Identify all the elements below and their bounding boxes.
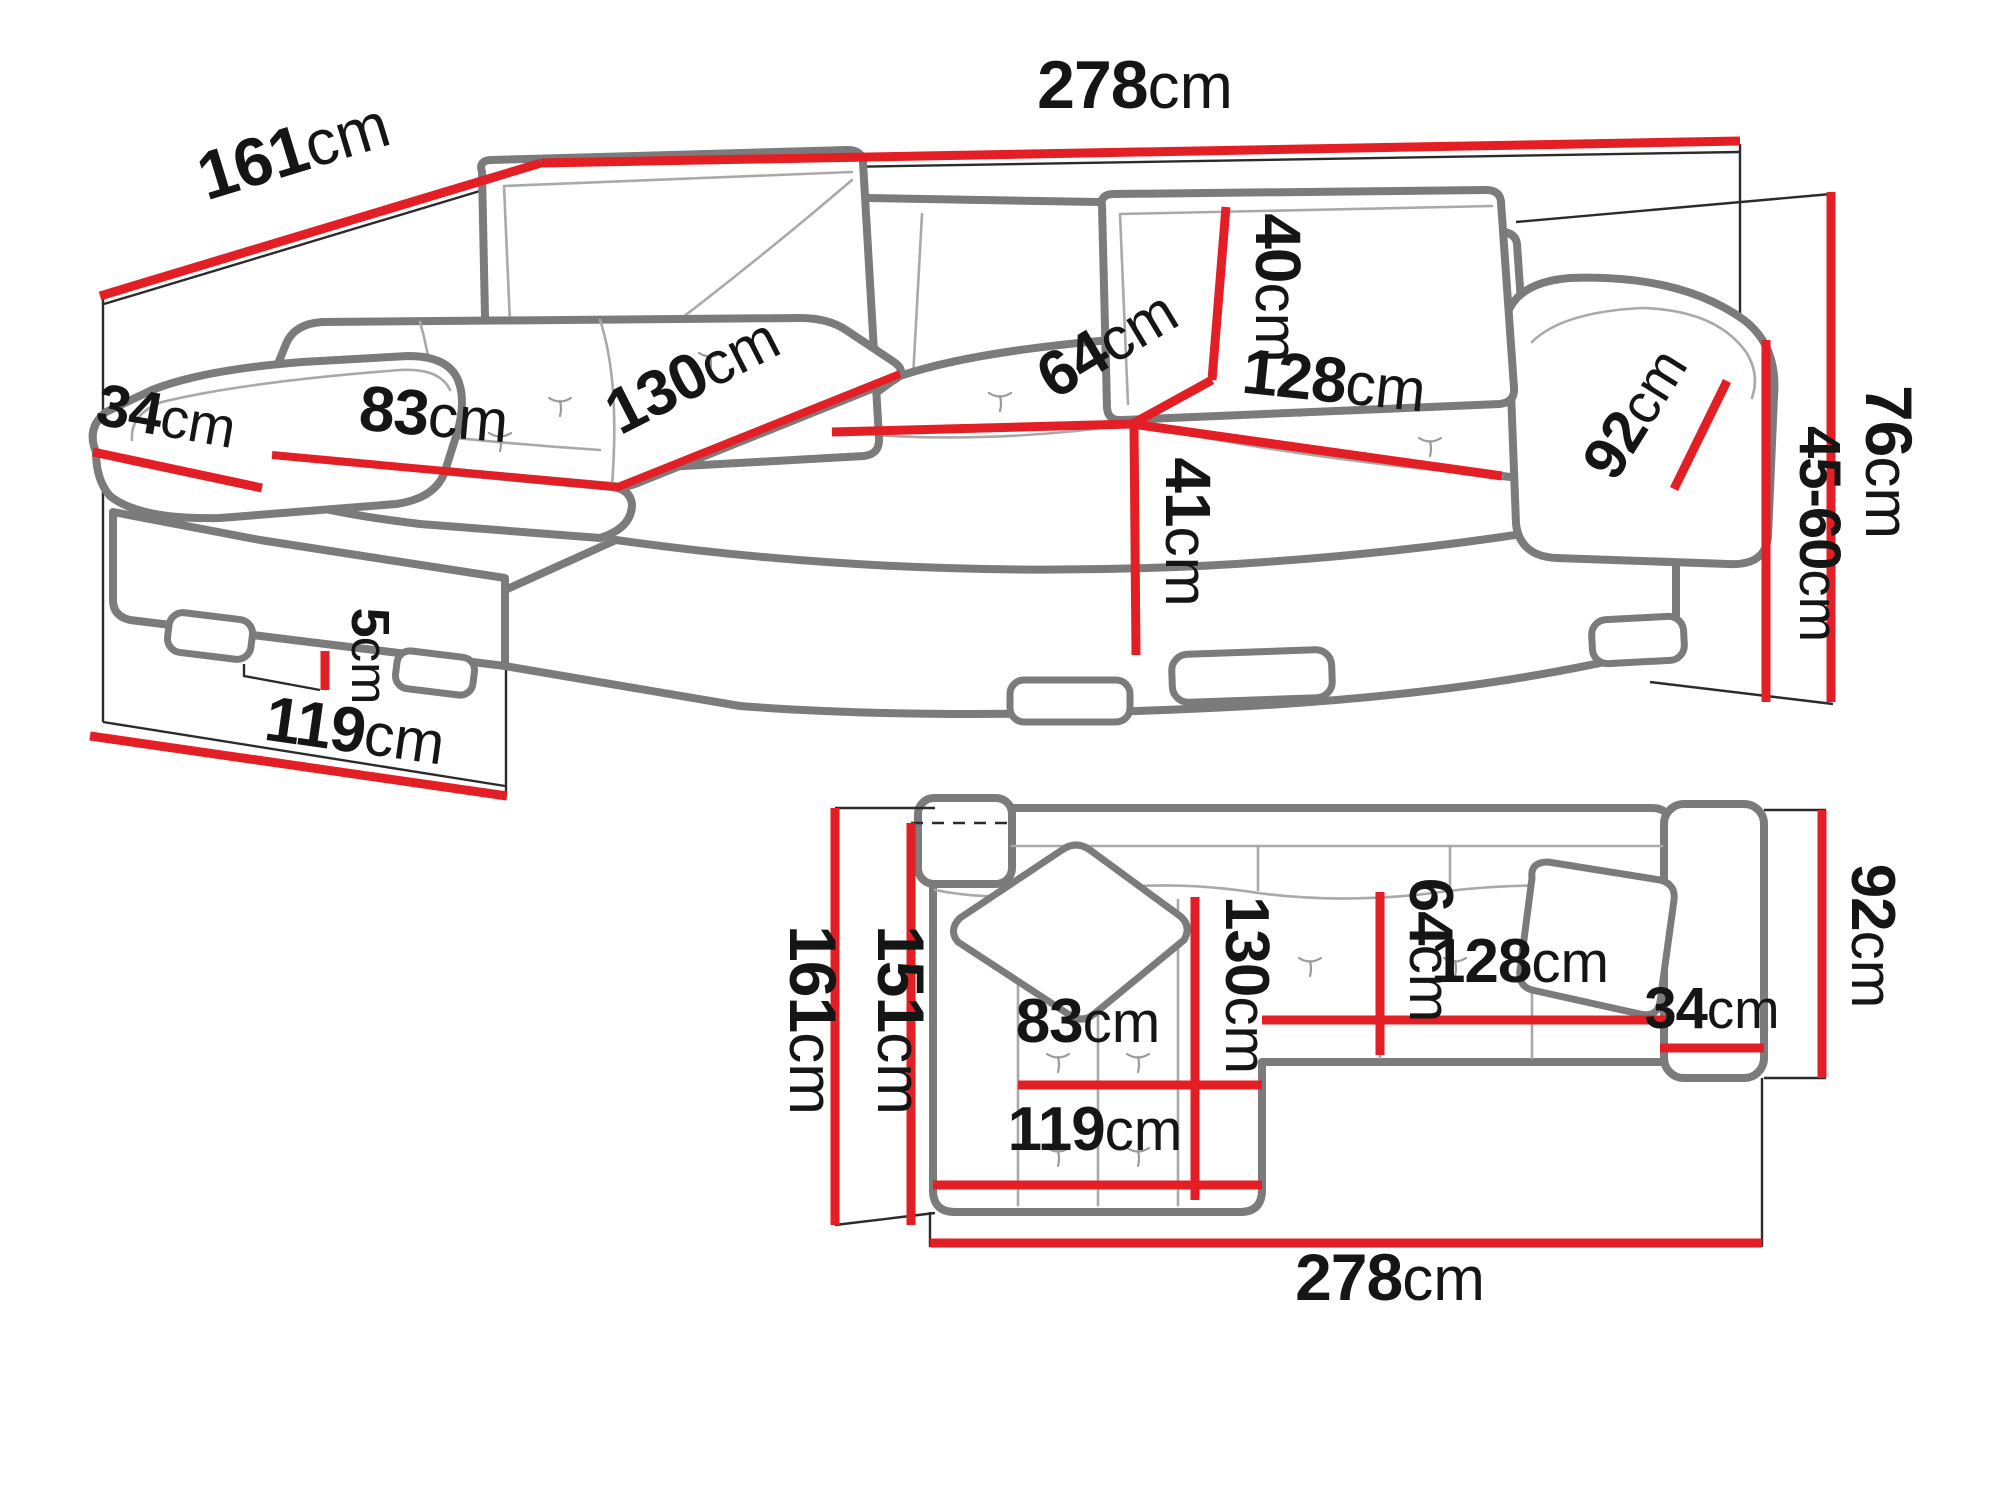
sofa-dimension-diagram: 161cm 278cm 40cm 64cm 128cm 92cm 76cm 45… <box>0 0 2000 1500</box>
sofa-leg <box>166 611 254 661</box>
plan-left-armrest <box>918 798 1012 884</box>
dim-45-60-label: 45-60cm <box>1787 426 1852 642</box>
plan-dim-34-label: 34cm <box>1644 976 1779 1041</box>
plan-dim-128-label: 128cm <box>1431 927 1609 996</box>
plan-dim-278-label: 278cm <box>1295 1240 1485 1314</box>
dim-76-label: 76cm <box>1852 385 1926 539</box>
dim-161-line <box>100 163 541 296</box>
sofa-leg <box>1171 649 1333 703</box>
sofa-leg <box>1010 680 1130 722</box>
top-plan-view: 161cm 151cm 130cm 64cm 128cm 34cm 92cm 8… <box>776 798 1907 1314</box>
dim-41-line <box>1134 424 1136 655</box>
sofa-leg <box>1591 616 1685 665</box>
plan-dim-119-label: 119cm <box>1008 1095 1183 1164</box>
plan-left-bottom-tick <box>835 1213 935 1225</box>
plan-dim-83-label: 83cm <box>1016 987 1161 1056</box>
diagram-canvas: 161cm 278cm 40cm 64cm 128cm 92cm 76cm 45… <box>0 0 2000 1500</box>
plan-dim-161-label: 161cm <box>776 925 850 1115</box>
dim-278-label: 278cm <box>1037 47 1233 123</box>
plan-dim-92-label: 92cm <box>1838 864 1907 1009</box>
wall-top-left-edge <box>104 172 543 304</box>
dim-5-label: 5cm <box>340 608 400 705</box>
sofa-leg <box>394 649 476 696</box>
dim-161-label: 161cm <box>189 85 398 215</box>
perspective-view: 161cm 278cm 40cm 64cm 128cm 92cm 76cm 45… <box>90 47 1926 796</box>
floor-right-extension <box>1650 682 1833 704</box>
height-top-extension <box>1516 194 1831 222</box>
plan-dim-130-label: 130cm <box>1212 896 1281 1074</box>
plan-dim-151-label: 151cm <box>864 925 938 1115</box>
dim-41-label: 41cm <box>1152 457 1224 606</box>
